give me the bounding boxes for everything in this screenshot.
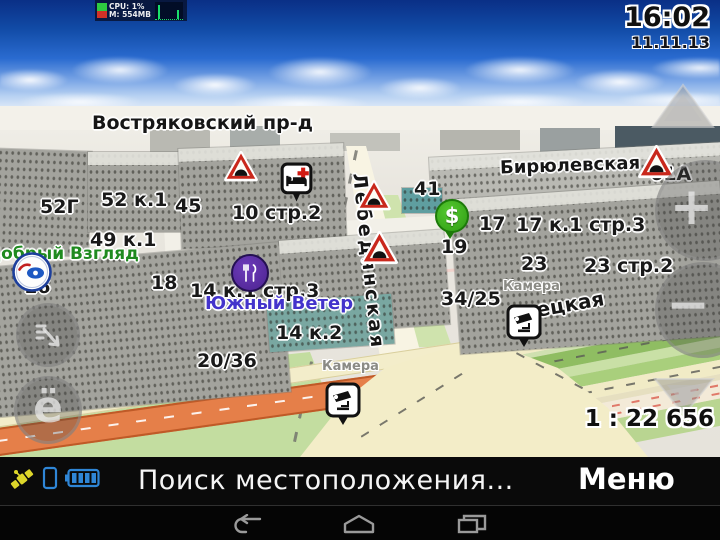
map-viewport[interactable]: Востряковский пр-д Бирюлевская Лебедянск… <box>0 0 720 457</box>
house-number: 45 <box>175 195 201 217</box>
yo-button[interactable]: ё <box>14 376 82 444</box>
speed-bump-sign-icon[interactable] <box>224 151 258 183</box>
house-number: 52 к.1 <box>101 189 167 211</box>
poi-label-restaurant: Южный Ветер <box>205 293 353 314</box>
dollar-glyph: $ <box>445 204 460 228</box>
yo-glyph: ё <box>33 382 63 433</box>
system-monitor-overlay: CPU: 1% M: 554MB <box>95 0 187 21</box>
house-number: 19 <box>441 236 467 258</box>
satellite-icon <box>8 465 36 493</box>
route-list-icon <box>30 317 66 353</box>
speed-camera-icon[interactable] <box>325 382 361 426</box>
house-number: 17 <box>479 213 505 235</box>
minus-glyph: − <box>666 275 710 335</box>
memory-usage: M: 554MB <box>109 11 151 19</box>
speed-camera-icon[interactable] <box>506 304 542 348</box>
house-number: 34/25 <box>441 288 501 310</box>
pan-up-arrow[interactable] <box>650 82 716 130</box>
cpu-graph <box>155 2 183 20</box>
house-number: 10 стр.2 <box>232 202 321 224</box>
home-button-icon[interactable] <box>342 514 376 534</box>
gps-status-text[interactable]: Поиск местоположения... <box>138 465 514 496</box>
android-nav-bar <box>0 505 720 540</box>
fork-knife-glyph <box>240 263 260 283</box>
speed-bump-sign-icon[interactable] <box>361 231 398 266</box>
monitor-icon <box>97 3 107 18</box>
house-number: 52Г <box>40 196 79 218</box>
distant-building <box>440 130 520 150</box>
house-number: 17 к.1 стр.3 <box>516 214 645 236</box>
house-number: 20/36 <box>197 350 257 372</box>
plus-glyph: + <box>670 177 714 237</box>
house-number: 14 к.2 <box>276 322 342 344</box>
date-display: 11.11.13 <box>624 34 710 52</box>
menu-button[interactable]: Меню <box>578 462 675 496</box>
clouds <box>0 40 720 115</box>
building-block <box>178 143 346 249</box>
hospital-icon[interactable] <box>280 162 313 203</box>
battery-icon <box>64 468 100 488</box>
atm-icon[interactable]: $ <box>435 199 469 233</box>
clock-panel: 16:02 11.11.13 <box>624 4 710 52</box>
street-label: Востряковский пр-д <box>92 112 313 134</box>
recents-button-icon[interactable] <box>456 514 488 534</box>
optician-eye-icon[interactable] <box>12 252 52 292</box>
atm-icon-pointer <box>445 231 455 239</box>
device-icon <box>42 466 58 490</box>
house-number: 41 <box>414 178 440 200</box>
house-number: 18 <box>151 272 177 294</box>
camera-label: Камера <box>503 279 560 294</box>
navigator-screen: Востряковский пр-д Бирюлевская Лебедянск… <box>0 0 720 540</box>
house-number: 23 <box>521 253 547 275</box>
time-display: 16:02 <box>624 4 710 32</box>
map-scale: 1 : 22 656 <box>585 406 714 432</box>
restaurant-icon[interactable] <box>231 254 269 292</box>
speed-bump-sign-icon[interactable] <box>357 180 391 212</box>
back-button-icon[interactable] <box>232 514 264 534</box>
house-number: 23 стр.2 <box>584 255 673 277</box>
camera-label: Камера <box>322 359 379 374</box>
bottom-bar: Поиск местоположения... Меню <box>0 457 720 505</box>
routes-button[interactable] <box>16 303 80 367</box>
